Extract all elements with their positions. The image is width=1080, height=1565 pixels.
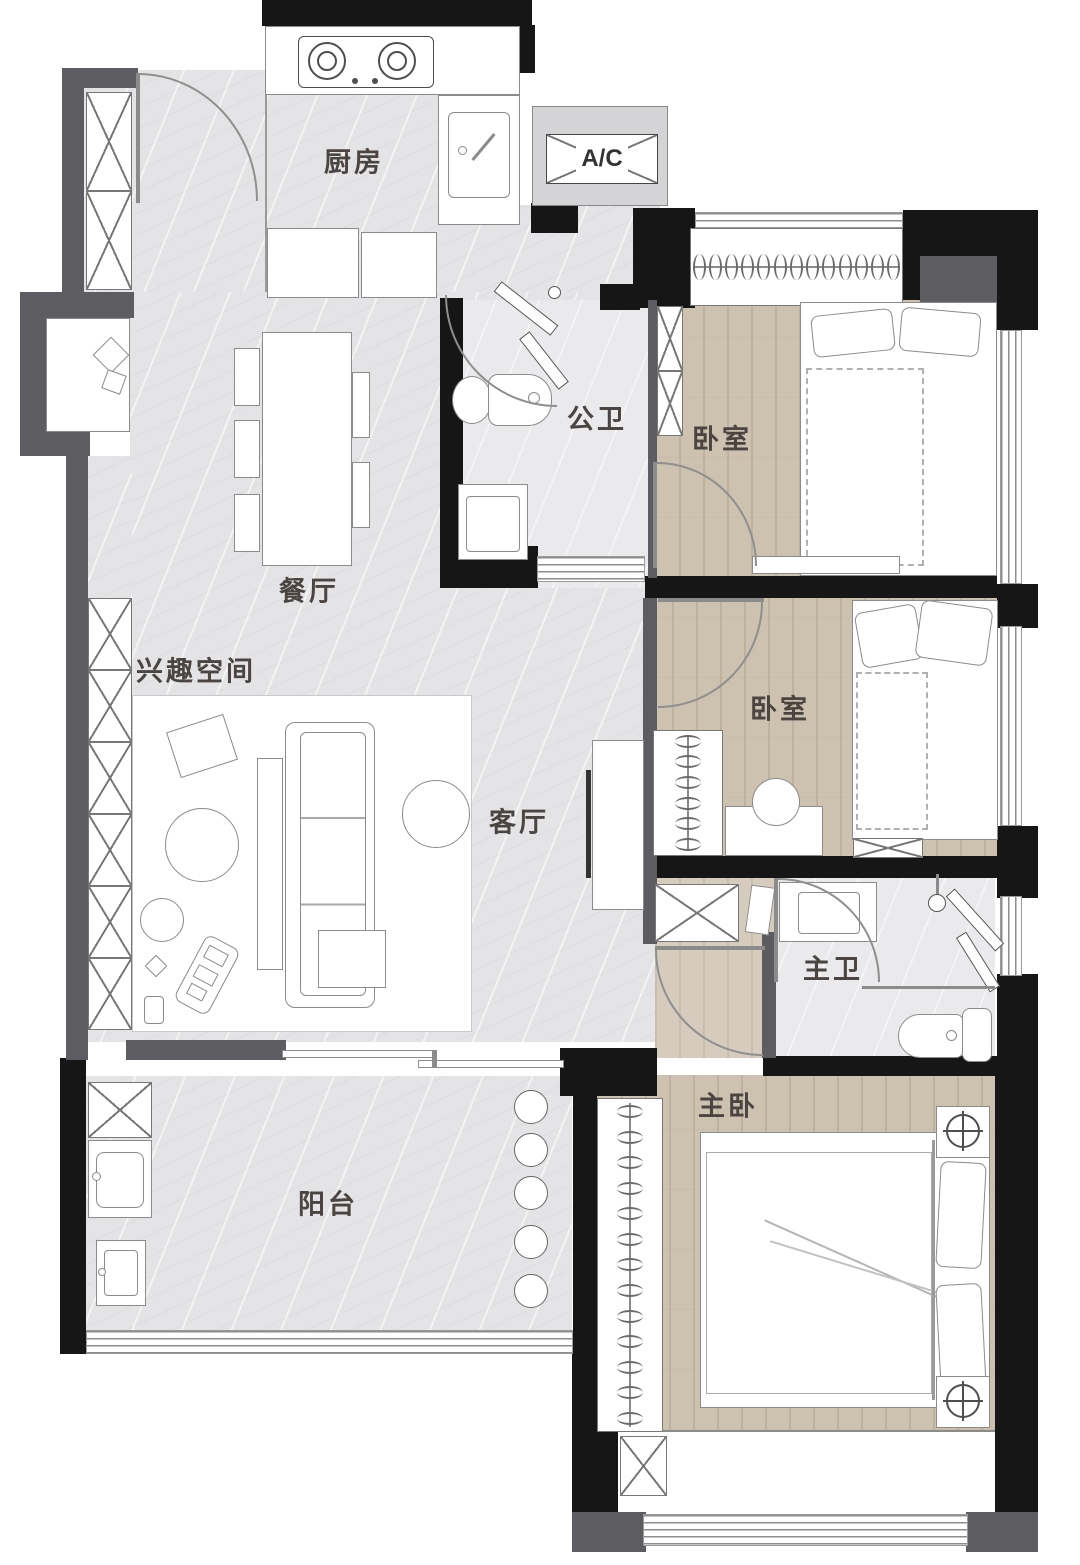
wall [573, 1094, 597, 1352]
guest-bathroom-label: 公卫 [567, 398, 627, 437]
master-bathroom-label: 主卫 [803, 948, 863, 987]
hanger-icon [871, 254, 884, 280]
dining-chair [234, 420, 260, 478]
wall [633, 208, 695, 308]
wall [262, 0, 532, 26]
wall [600, 284, 640, 310]
hanger-icon [617, 1258, 643, 1271]
ac-unit-label: A/C [576, 145, 627, 173]
kitchen-cabinet [361, 232, 437, 298]
floor-plan: A/C [0, 0, 1080, 1565]
bookshelf [88, 886, 132, 958]
hanger-icon [617, 1412, 643, 1425]
hanger-icon [617, 1233, 643, 1246]
balcony-label: 阳台 [298, 1183, 358, 1222]
round-rug [165, 808, 239, 882]
ac-unit-box: A/C [546, 134, 658, 184]
hanger-icon [790, 254, 803, 280]
hanger-icon [757, 254, 770, 280]
bed-bench [853, 838, 923, 858]
shoe-cabinet [86, 191, 132, 290]
window [1000, 330, 1022, 584]
lamp-icon [946, 1384, 980, 1418]
toilet-tank-icon [452, 376, 492, 424]
plant-icon [514, 1090, 548, 1124]
wall [997, 826, 1038, 898]
stove-knob-icon [372, 78, 378, 84]
stove-burner-icon [378, 42, 416, 80]
duvet [806, 368, 924, 566]
wall-secondary [966, 1512, 1038, 1552]
wall-secondary [126, 1040, 286, 1060]
wall [560, 1048, 657, 1096]
pillow [935, 1161, 986, 1269]
washing-machine-drum [96, 1152, 144, 1208]
sliding-door [418, 1060, 564, 1068]
hanger-icon [675, 755, 701, 768]
toilet-flush-icon [946, 1030, 957, 1041]
wall [997, 974, 1038, 1066]
faucet-icon [458, 146, 467, 155]
bedroom-middle-label: 卧室 [750, 688, 810, 727]
balcony-cabinet [88, 1082, 152, 1138]
toy-car-window [203, 945, 229, 968]
hanger-icon [617, 1131, 643, 1144]
bed-bench [752, 556, 900, 574]
wall [997, 584, 1038, 628]
shower-threshold [537, 556, 645, 582]
hanger-icon [741, 254, 754, 280]
desk-chair [752, 778, 800, 826]
hanger-icon [617, 1284, 643, 1297]
wall [995, 1062, 1038, 1514]
shower-glass [862, 986, 995, 989]
hanger-icon [675, 776, 701, 789]
hanger-icon [806, 254, 819, 280]
bookshelf [88, 742, 132, 814]
hanger-icon [617, 1335, 643, 1348]
wall [531, 203, 578, 233]
hanger-icon [675, 797, 701, 810]
pillow [898, 307, 982, 358]
washing-machine-dial [92, 1172, 101, 1181]
ottoman [318, 930, 386, 988]
headboard [932, 1140, 935, 1400]
dining-chair [352, 462, 370, 528]
wall [645, 576, 997, 598]
pillow [935, 1283, 986, 1391]
hanger-icon [774, 254, 787, 280]
shower-head-icon [928, 894, 946, 912]
dining-table [262, 332, 352, 566]
window [695, 212, 903, 228]
wall [648, 856, 997, 878]
shower-stem-icon [936, 874, 939, 896]
wall-secondary [62, 68, 84, 294]
toy-block [144, 996, 164, 1024]
hanger-icon [675, 817, 701, 830]
bath-sink-icon [466, 496, 520, 552]
window [1000, 626, 1022, 826]
faucet-icon [98, 1268, 106, 1276]
hanger-icon [617, 1105, 643, 1118]
balcony-window [86, 1330, 573, 1354]
dining-room-label: 餐厅 [279, 570, 339, 609]
hanger-icon [617, 1182, 643, 1195]
hanger-icon [675, 838, 701, 851]
mattress [706, 1152, 932, 1394]
hanger-icon [617, 1361, 643, 1374]
toilet-tank-icon [962, 1008, 992, 1062]
duvet [856, 672, 928, 830]
cabinet [620, 1436, 667, 1496]
bookshelf [88, 958, 132, 1030]
hanger-icon [675, 735, 701, 748]
master-bedroom-label: 主卧 [698, 1085, 758, 1124]
dining-chair [234, 348, 260, 406]
bookshelf [88, 814, 132, 886]
wardrobe [597, 1098, 663, 1432]
plant-icon [514, 1133, 548, 1167]
stove-knob-icon [352, 78, 358, 84]
bay-window [643, 1514, 968, 1546]
plant-icon [514, 1225, 548, 1259]
kitchen-sink-icon [448, 112, 510, 198]
kitchen-label: 厨房 [324, 141, 384, 180]
wall [60, 1058, 86, 1354]
wall [763, 1056, 997, 1076]
toy-car-window [186, 983, 208, 1002]
coffee-table [402, 780, 470, 848]
duct-shaft [657, 306, 683, 371]
sliding-door [282, 1050, 434, 1058]
sliding-door-post [432, 1050, 437, 1068]
round-cushion [140, 898, 184, 942]
hanger-icon [855, 254, 868, 280]
toy-car-window [193, 964, 219, 987]
window [1000, 896, 1022, 976]
duct-shaft [657, 371, 683, 436]
hanger-icon [617, 1386, 643, 1399]
hanger-icon [822, 254, 835, 280]
hanger-icon [887, 254, 900, 280]
tv-icon [586, 770, 591, 878]
pillow [914, 599, 993, 666]
hanger-icon [709, 254, 722, 280]
fridge [267, 228, 359, 298]
bedroom-upper-label: 卧室 [692, 418, 752, 457]
tv-cabinet [592, 740, 644, 910]
plant-icon [514, 1176, 548, 1210]
plant-icon [514, 1274, 548, 1308]
balcony-sink-basin [104, 1250, 138, 1296]
hanger-icon [617, 1156, 643, 1169]
shoe-cabinet [86, 92, 132, 191]
hanger-icon [693, 254, 706, 280]
hanger-icon [839, 254, 852, 280]
wardrobe [690, 228, 903, 306]
corridor-closet [655, 884, 739, 942]
living-room-label: 客厅 [489, 801, 549, 840]
wall-secondary [572, 1512, 646, 1552]
bookshelf [88, 670, 132, 742]
wall-secondary [20, 430, 90, 456]
wall [997, 210, 1038, 330]
dining-chair [352, 372, 370, 438]
lamp-icon [946, 1114, 980, 1148]
hanger-icon [725, 254, 738, 280]
bookshelf [88, 598, 132, 670]
dining-chair [234, 494, 260, 552]
wall-secondary [66, 456, 88, 1060]
sofa-back-table [257, 758, 283, 970]
pillow [854, 603, 925, 669]
hobby-space-label: 兴趣空间 [136, 650, 256, 689]
hanger-icon [617, 1207, 643, 1220]
wardrobe [653, 730, 723, 856]
wall-secondary [62, 68, 138, 88]
hanger-icon [617, 1310, 643, 1323]
stove-burner-icon [308, 42, 346, 80]
pillow [810, 308, 896, 358]
